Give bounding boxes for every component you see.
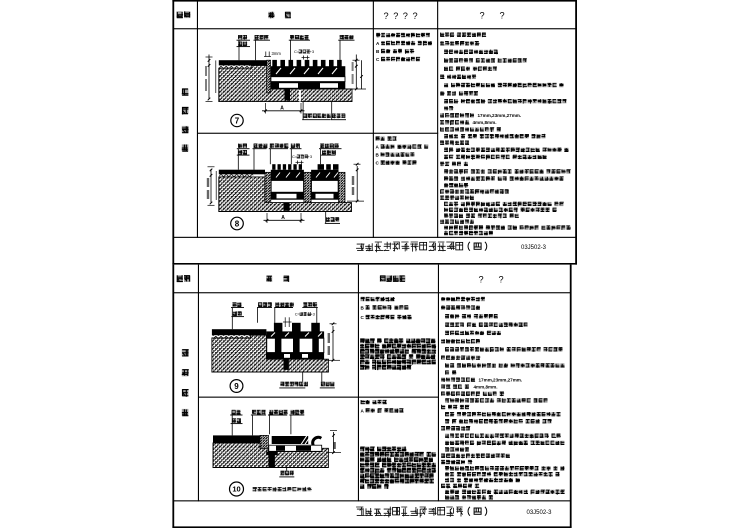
svg-text:3mm: 3mm bbox=[272, 51, 282, 56]
svg-text:A: A bbox=[280, 105, 284, 111]
svg-text:?: ? bbox=[500, 11, 505, 21]
svg-text:+3: +3 bbox=[310, 312, 315, 317]
svg-text:03J502-3: 03J502-3 bbox=[527, 510, 553, 516]
svg-text:03J502-3: 03J502-3 bbox=[521, 245, 547, 251]
svg-text:?: ? bbox=[393, 11, 398, 21]
svg-text:?: ? bbox=[480, 11, 485, 21]
svg-text:17mm,23mm,27mm.: 17mm,23mm,27mm. bbox=[479, 377, 523, 382]
svg-text:10: 10 bbox=[232, 485, 240, 494]
svg-text:?: ? bbox=[384, 11, 389, 21]
svg-text:+3: +3 bbox=[308, 154, 313, 159]
svg-text:4mm,8mm.: 4mm,8mm. bbox=[473, 120, 497, 125]
svg-text:4mm,8mm.: 4mm,8mm. bbox=[474, 384, 498, 389]
svg-text:8: 8 bbox=[235, 219, 240, 228]
svg-text:?: ? bbox=[499, 274, 504, 284]
svg-text:7: 7 bbox=[235, 116, 240, 125]
svg-text:A: A bbox=[281, 215, 285, 221]
svg-text:17mm,23mm,27mm.: 17mm,23mm,27mm. bbox=[478, 113, 522, 118]
svg-text:?: ? bbox=[403, 11, 408, 21]
svg-text:9: 9 bbox=[234, 382, 239, 391]
svg-text:?: ? bbox=[479, 274, 484, 284]
svg-text:+3: +3 bbox=[310, 49, 315, 54]
svg-text:?: ? bbox=[413, 11, 418, 21]
